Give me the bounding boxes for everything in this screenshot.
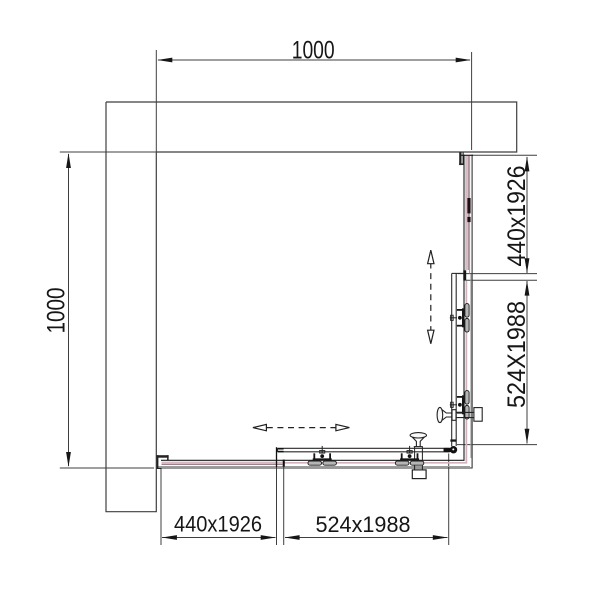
svg-text:440x1926: 440x1926 (174, 512, 262, 537)
svg-text:1000: 1000 (43, 288, 71, 334)
svg-text:440x1926: 440x1926 (503, 166, 531, 267)
svg-text:524X1988: 524X1988 (503, 301, 531, 408)
svg-text:524x1988: 524x1988 (316, 512, 411, 537)
svg-text:1000: 1000 (292, 37, 335, 65)
